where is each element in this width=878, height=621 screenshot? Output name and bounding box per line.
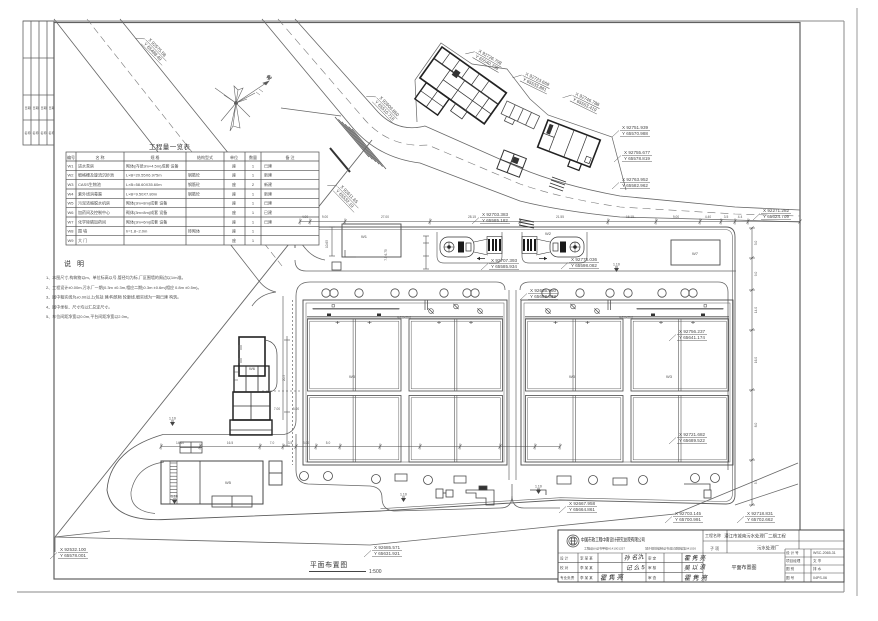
svg-text:日期: 日期 <box>49 105 55 110</box>
svg-text:Y 65631.921: Y 65631.921 <box>374 551 400 556</box>
svg-text:座: 座 <box>232 172 236 178</box>
svg-text:砌体(3m×8m)成套 设备: 砌体(3m×8m)成套 设备 <box>126 200 167 206</box>
svg-text:h=1.8~2.0m: h=1.8~2.0m <box>126 229 148 234</box>
svg-text:1、本图尺寸,构筑物以m、单位标高以号,管径均为标,厂区围墙: 1、本图尺寸,构筑物以m、单位标高以号,管径均为标,厂区围墙的周边以1/m准。 <box>46 274 186 280</box>
svg-text:W2: W2 <box>545 231 552 236</box>
svg-text:城乡规划编制证书(建)城规编第041026: 城乡规划编制证书(建)城规编第041026 <box>645 546 696 551</box>
svg-text:工程设计证书甲级A141001257: 工程设计证书甲级A141001257 <box>584 546 625 551</box>
svg-text:砌体(3m×8m)成套 设备: 砌体(3m×8m)成套 设备 <box>126 209 167 215</box>
svg-text:李 某 某: 李 某 某 <box>580 575 593 580</box>
svg-text:7.0: 7.0 <box>270 441 275 445</box>
svg-text:工程名称: 工程名称 <box>705 532 721 538</box>
svg-text:Y 65689.522: Y 65689.522 <box>679 438 705 443</box>
svg-text:14.0: 14.0 <box>754 307 758 313</box>
svg-text:座: 座 <box>232 228 236 234</box>
svg-text:X 92778.036: X 92778.036 <box>571 257 598 262</box>
svg-text:X 92718.831: X 92718.831 <box>747 511 774 516</box>
svg-text:编号: 编号 <box>67 154 75 160</box>
svg-text:9.0: 9.0 <box>754 272 758 277</box>
svg-text:X 92756.237: X 92756.237 <box>679 329 706 334</box>
svg-text:04PS-06: 04PS-06 <box>813 576 827 580</box>
svg-text:新建: 新建 <box>264 181 272 187</box>
svg-text:3.0: 3.0 <box>754 241 758 246</box>
svg-text:X 92271.282: X 92271.282 <box>763 208 790 213</box>
svg-text:W8: W8 <box>68 229 75 234</box>
svg-text:4.4: 4.4 <box>738 215 743 219</box>
svg-text:X 92532.100: X 92532.100 <box>60 547 87 552</box>
svg-text:16.5: 16.5 <box>227 441 233 445</box>
svg-text:X 92635.950: X 92635.950 <box>530 288 557 293</box>
svg-text:1:500: 1:500 <box>369 569 382 575</box>
svg-text:X 92721.682: X 92721.682 <box>679 432 706 437</box>
svg-text:3.5: 3.5 <box>724 215 729 219</box>
svg-text:霍 隽 亮: 霍 隽 亮 <box>684 574 709 582</box>
svg-text:已建: 已建 <box>264 200 272 206</box>
svg-text:WSC-2065-31: WSC-2065-31 <box>813 551 836 555</box>
svg-text:27.00: 27.00 <box>381 215 389 219</box>
svg-text:座: 座 <box>232 218 236 224</box>
svg-text:9.00: 9.00 <box>673 215 679 219</box>
svg-text:W7: W7 <box>692 251 699 256</box>
svg-text:砌体(内径3m×4.5m)成套 设备: 砌体(内径3m×4.5m)成套 设备 <box>126 162 179 168</box>
svg-text:数量: 数量 <box>249 154 257 160</box>
svg-text:20.5: 20.5 <box>282 375 286 381</box>
svg-text:名称: 名称 <box>33 130 39 135</box>
svg-text:1.10: 1.10 <box>171 495 178 499</box>
svg-text:钢筋砼: 钢筋砼 <box>188 172 200 178</box>
svg-text:W1: W1 <box>361 234 368 239</box>
svg-text:日期: 日期 <box>41 105 47 110</box>
svg-text:X 92763.952: X 92763.952 <box>622 177 649 182</box>
svg-text:X 92707.393: X 92707.393 <box>491 258 518 263</box>
svg-text:钢筋砼: 钢筋砼 <box>188 181 200 187</box>
svg-text:砌体(3m×6m)成套 设备: 砌体(3m×6m)成套 设备 <box>126 218 167 224</box>
svg-text:说 明: 说 明 <box>64 259 86 268</box>
svg-text:W2: W2 <box>68 173 75 178</box>
svg-text:W1: W1 <box>68 163 75 168</box>
svg-text:Y 65578.001: Y 65578.001 <box>60 553 86 558</box>
svg-text:28.15: 28.15 <box>468 215 476 219</box>
svg-text:5、车位间距净宽以0.0m,平台间距净宽以2.0m。: 5、车位间距净宽以0.0m,平台间距净宽以2.0m。 <box>46 313 131 319</box>
svg-text:备 注: 备 注 <box>285 154 294 160</box>
svg-text:名称: 名称 <box>41 130 47 135</box>
svg-text:设 计 号: 设 计 号 <box>786 550 799 555</box>
svg-text:名称: 名称 <box>49 130 55 135</box>
svg-text:L×B=58.60X35.60m: L×B=58.60X35.60m <box>126 182 162 187</box>
svg-text:CASS生物池: CASS生物池 <box>78 181 101 187</box>
svg-text:名称: 名称 <box>25 130 31 135</box>
svg-text:子 项: 子 项 <box>710 545 719 551</box>
svg-text:座: 座 <box>232 181 236 187</box>
svg-text:审 查: 审 查 <box>648 575 657 580</box>
svg-text:2、工程设计±0.00m,污水厂一期(0.3m ±0.3m,: 2、工程设计±0.00m,污水厂一期(0.3m ±0.3m,相应二期)0.3m … <box>46 284 201 290</box>
svg-text:7.5 6.75: 7.5 6.75 <box>384 249 388 261</box>
svg-text:化学除磷加药间: 化学除磷加药间 <box>78 218 106 224</box>
svg-text:4、图中坐标、尺寸均以汇总定尺寸。: 4、图中坐标、尺寸均以汇总定尺寸。 <box>46 303 112 309</box>
svg-text:平面布置图: 平面布置图 <box>731 564 756 571</box>
svg-text:Y 65585.934: Y 65585.934 <box>491 264 517 269</box>
svg-text:潜江市城南污水处理厂二期工程: 潜江市城南污水处理厂二期工程 <box>724 533 786 540</box>
svg-text:座: 座 <box>232 209 236 215</box>
svg-text:Y 65570.988: Y 65570.988 <box>622 131 648 136</box>
svg-text:16.0: 16.0 <box>754 357 758 363</box>
svg-text:16.15: 16.15 <box>626 215 634 219</box>
svg-text:平面布置图: 平面布置图 <box>310 560 348 569</box>
svg-text:W4: W4 <box>68 191 75 196</box>
svg-text:Y 65582.962: Y 65582.962 <box>622 183 648 188</box>
svg-text:图 号: 图 号 <box>786 575 795 580</box>
svg-text:文 岑: 文 岑 <box>813 558 822 563</box>
svg-text:W3: W3 <box>569 374 576 379</box>
svg-text:3、图中粗实线为±0.00以上(包括 建/构筑物 轮廓线,细: 3、图中粗实线为±0.00以上(包括 建/构筑物 轮廓线,细实线为一期已建 构筑… <box>46 294 181 300</box>
svg-text:日期: 日期 <box>25 105 31 110</box>
svg-text:名 称: 名 称 <box>95 154 104 160</box>
svg-text:项目经理: 项目经理 <box>786 558 801 563</box>
svg-text:霍 隽 亮: 霍 隽 亮 <box>600 573 625 582</box>
svg-text:7.00: 7.00 <box>274 407 280 411</box>
svg-text:Y 65624.709: Y 65624.709 <box>763 214 789 219</box>
svg-text:结构型式: 结构型式 <box>197 154 213 160</box>
svg-text:Y 65641.174: Y 65641.174 <box>679 335 705 340</box>
svg-text:X 92703.145: X 92703.145 <box>675 511 702 516</box>
svg-text:Y 65598.082: Y 65598.082 <box>571 263 597 268</box>
svg-text:已建: 已建 <box>264 209 272 215</box>
svg-text:1.10: 1.10 <box>535 485 542 489</box>
svg-text:围 墙: 围 墙 <box>78 228 87 234</box>
svg-text:审 定: 审 定 <box>648 556 657 561</box>
svg-text:1.10: 1.10 <box>613 263 620 267</box>
svg-text:21.55: 21.55 <box>556 215 564 219</box>
svg-text:座: 座 <box>232 237 236 243</box>
svg-text:校 对: 校 对 <box>560 565 569 570</box>
svg-text:紫外线消毒渠: 紫外线消毒渠 <box>78 190 102 196</box>
svg-text:进水泵房: 进水泵房 <box>78 162 94 168</box>
svg-text:5.00: 5.00 <box>293 407 299 411</box>
svg-text:排 水: 排 水 <box>813 566 822 571</box>
svg-text:L×B=20.55X6.975m: L×B=20.55X6.975m <box>126 173 162 178</box>
svg-text:W3: W3 <box>349 374 356 379</box>
svg-text:14.40: 14.40 <box>176 441 184 445</box>
svg-text:W3: W3 <box>666 374 673 379</box>
svg-text:5.4: 5.4 <box>754 480 758 485</box>
svg-text:中国市政工程中南设计研究总院有限公司: 中国市政工程中南设计研究总院有限公司 <box>581 536 645 544</box>
svg-text:1.10: 1.10 <box>400 493 407 497</box>
svg-text:W7: W7 <box>68 219 75 224</box>
svg-text:加药间及控制中心: 加药间及控制中心 <box>78 209 110 215</box>
svg-text:李 某 某: 李 某 某 <box>580 556 593 561</box>
svg-text:记 么 5: 记 么 5 <box>626 564 646 572</box>
svg-text:北: 北 <box>265 73 273 82</box>
svg-text:4.00: 4.00 <box>302 215 308 219</box>
svg-text:审 核: 审 核 <box>648 565 657 570</box>
svg-text:3.5: 3.5 <box>288 441 293 445</box>
svg-text:单位: 单位 <box>230 154 238 160</box>
svg-text:座: 座 <box>232 162 236 168</box>
svg-text:W6: W6 <box>68 210 75 215</box>
svg-text:已建: 已建 <box>264 162 272 168</box>
svg-text:4.40: 4.40 <box>705 215 711 219</box>
svg-text:新建: 新建 <box>264 172 272 178</box>
svg-text:图 别: 图 别 <box>786 566 795 571</box>
svg-text:Y 65702.662: Y 65702.662 <box>747 517 773 522</box>
svg-text:Y 65700.991: Y 65700.991 <box>675 517 701 522</box>
svg-text:钢筋砼: 钢筋砼 <box>188 190 200 196</box>
svg-text:座: 座 <box>232 200 236 206</box>
svg-text:砖砌体: 砖砌体 <box>188 228 200 234</box>
svg-text:8.0: 8.0 <box>754 423 758 428</box>
svg-text:9.00: 9.00 <box>322 215 328 219</box>
svg-text:工程量一览表: 工程量一览表 <box>149 142 190 151</box>
svg-text:Y 65608.533: Y 65608.533 <box>530 294 556 299</box>
svg-text:已建: 已建 <box>264 218 272 224</box>
svg-text:5.0: 5.0 <box>326 441 331 445</box>
svg-text:污水处理厂: 污水处理厂 <box>757 545 780 552</box>
svg-text:污泥浓缩脱水机房: 污泥浓缩脱水机房 <box>78 200 110 206</box>
svg-text:W6: W6 <box>249 366 256 371</box>
svg-text:细格栅及旋流沉砂池: 细格栅及旋流沉砂池 <box>78 172 114 178</box>
svg-text:设 计: 设 计 <box>560 556 569 561</box>
svg-text:10.65: 10.65 <box>325 240 329 248</box>
svg-text:W3: W3 <box>68 182 75 187</box>
svg-text:X 92667.958: X 92667.958 <box>569 501 596 506</box>
svg-text:李 某 某: 李 某 某 <box>580 565 593 570</box>
svg-text:规 格: 规 格 <box>150 154 159 160</box>
svg-text:1.10: 1.10 <box>169 417 176 421</box>
svg-text:日期: 日期 <box>33 105 39 110</box>
svg-text:X 92755.677: X 92755.677 <box>624 150 651 155</box>
svg-text:W5: W5 <box>68 201 75 206</box>
svg-text:Y 65578.819: Y 65578.819 <box>624 156 650 161</box>
svg-text:专业负责: 专业负责 <box>560 575 575 580</box>
svg-text:X 92751.939: X 92751.939 <box>622 125 649 130</box>
svg-text:大 门: 大 门 <box>78 237 87 243</box>
svg-text:Y 65664.861: Y 65664.861 <box>569 507 595 512</box>
svg-text:X 92703.383: X 92703.383 <box>482 212 509 217</box>
svg-text:W5: W5 <box>225 480 232 485</box>
svg-text:X 92685.571: X 92685.571 <box>374 545 401 550</box>
svg-text:Y 65585.182: Y 65585.182 <box>482 218 508 223</box>
svg-text:座: 座 <box>232 190 236 196</box>
svg-text:L×B=9.50X7.80m: L×B=9.50X7.80m <box>126 191 158 196</box>
svg-text:3.00: 3.00 <box>303 441 309 445</box>
svg-text:新建: 新建 <box>264 190 272 196</box>
svg-text:W9: W9 <box>68 238 75 243</box>
